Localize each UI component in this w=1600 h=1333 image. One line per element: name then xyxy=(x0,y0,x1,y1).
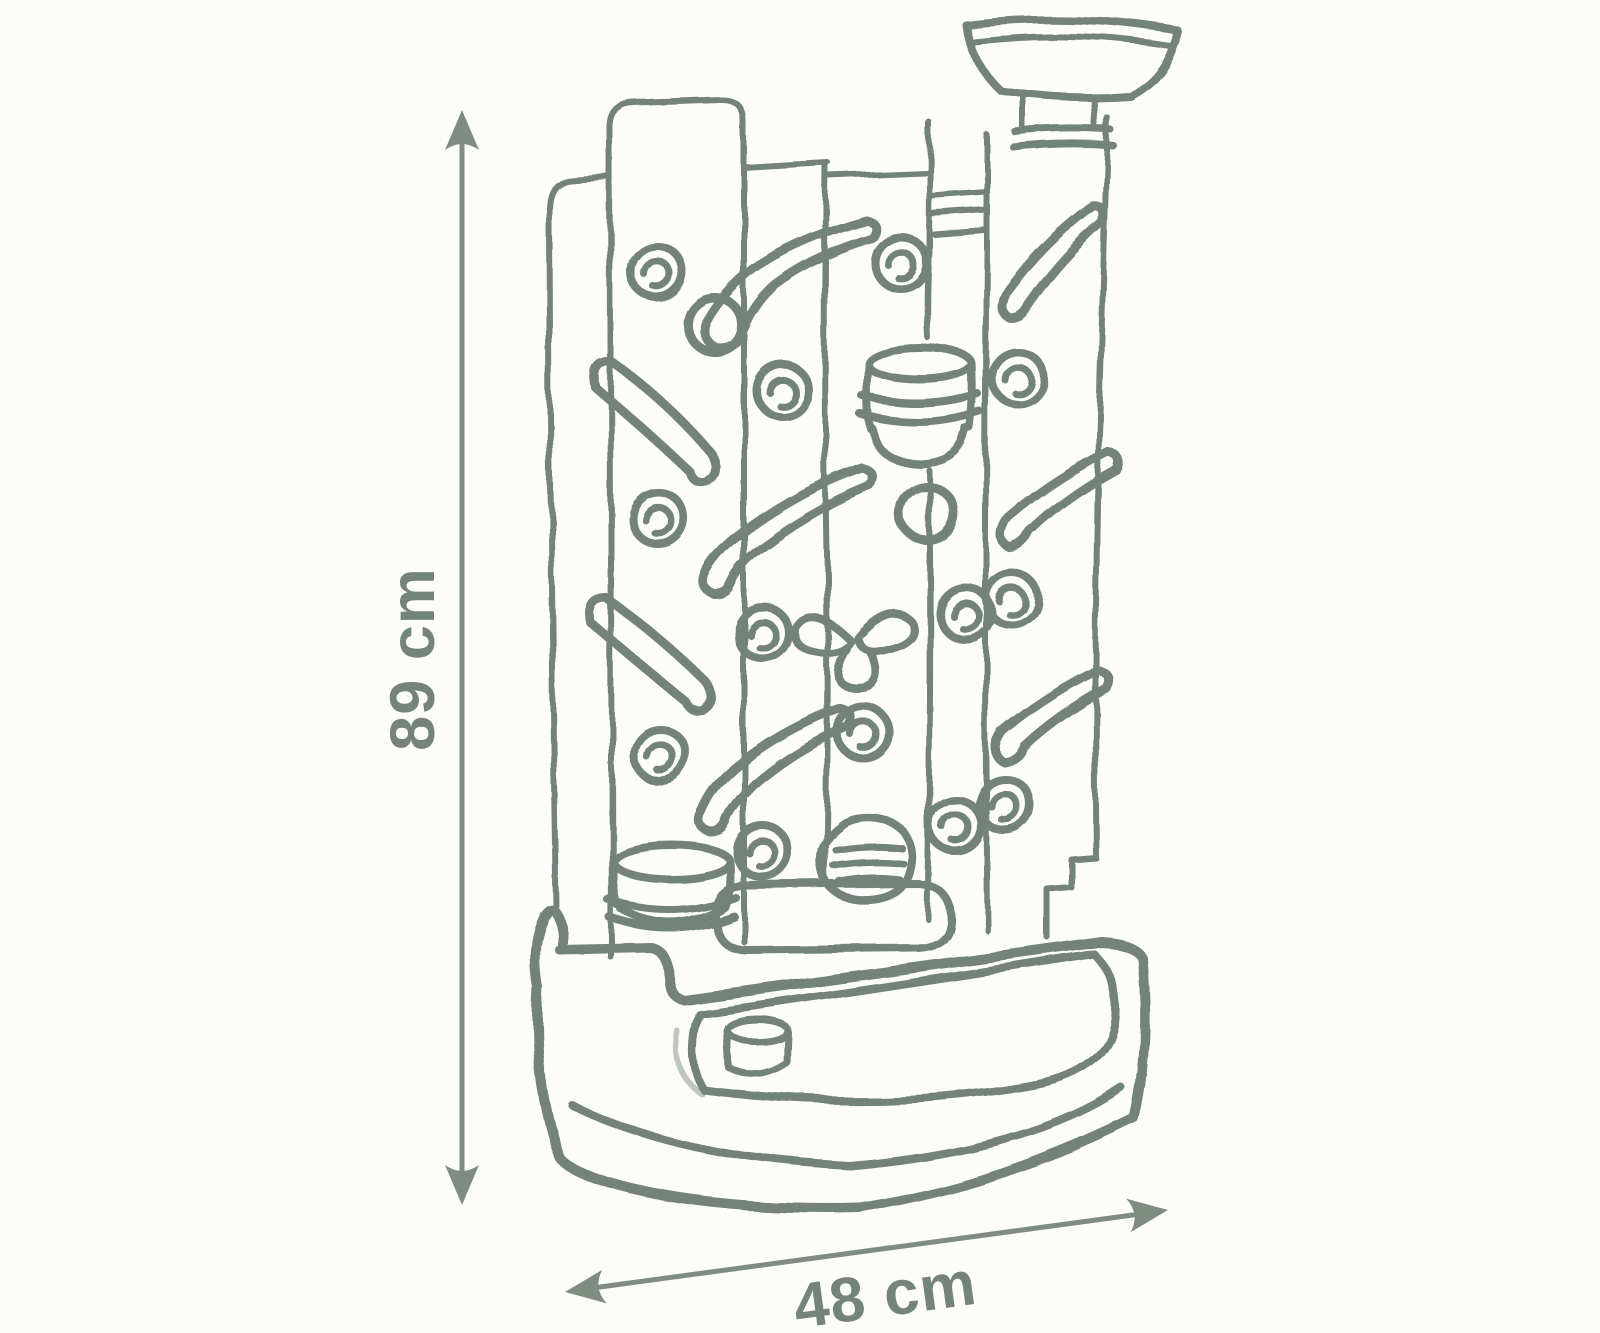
ladder-sketch xyxy=(929,123,987,253)
marble-run-sketch xyxy=(0,0,1600,1333)
arrowhead-up-icon xyxy=(445,110,479,150)
product-dimension-diagram: 89 cm 48 cm xyxy=(0,0,1600,1333)
height-dimension-label: 89 cm xyxy=(373,509,453,809)
arrowhead-down-icon xyxy=(445,1165,479,1205)
base-sketch xyxy=(535,910,1144,1208)
flower-piece-sketch xyxy=(795,614,914,688)
funnel-sketch xyxy=(966,20,1178,148)
upper-cup-sketch xyxy=(860,348,980,464)
